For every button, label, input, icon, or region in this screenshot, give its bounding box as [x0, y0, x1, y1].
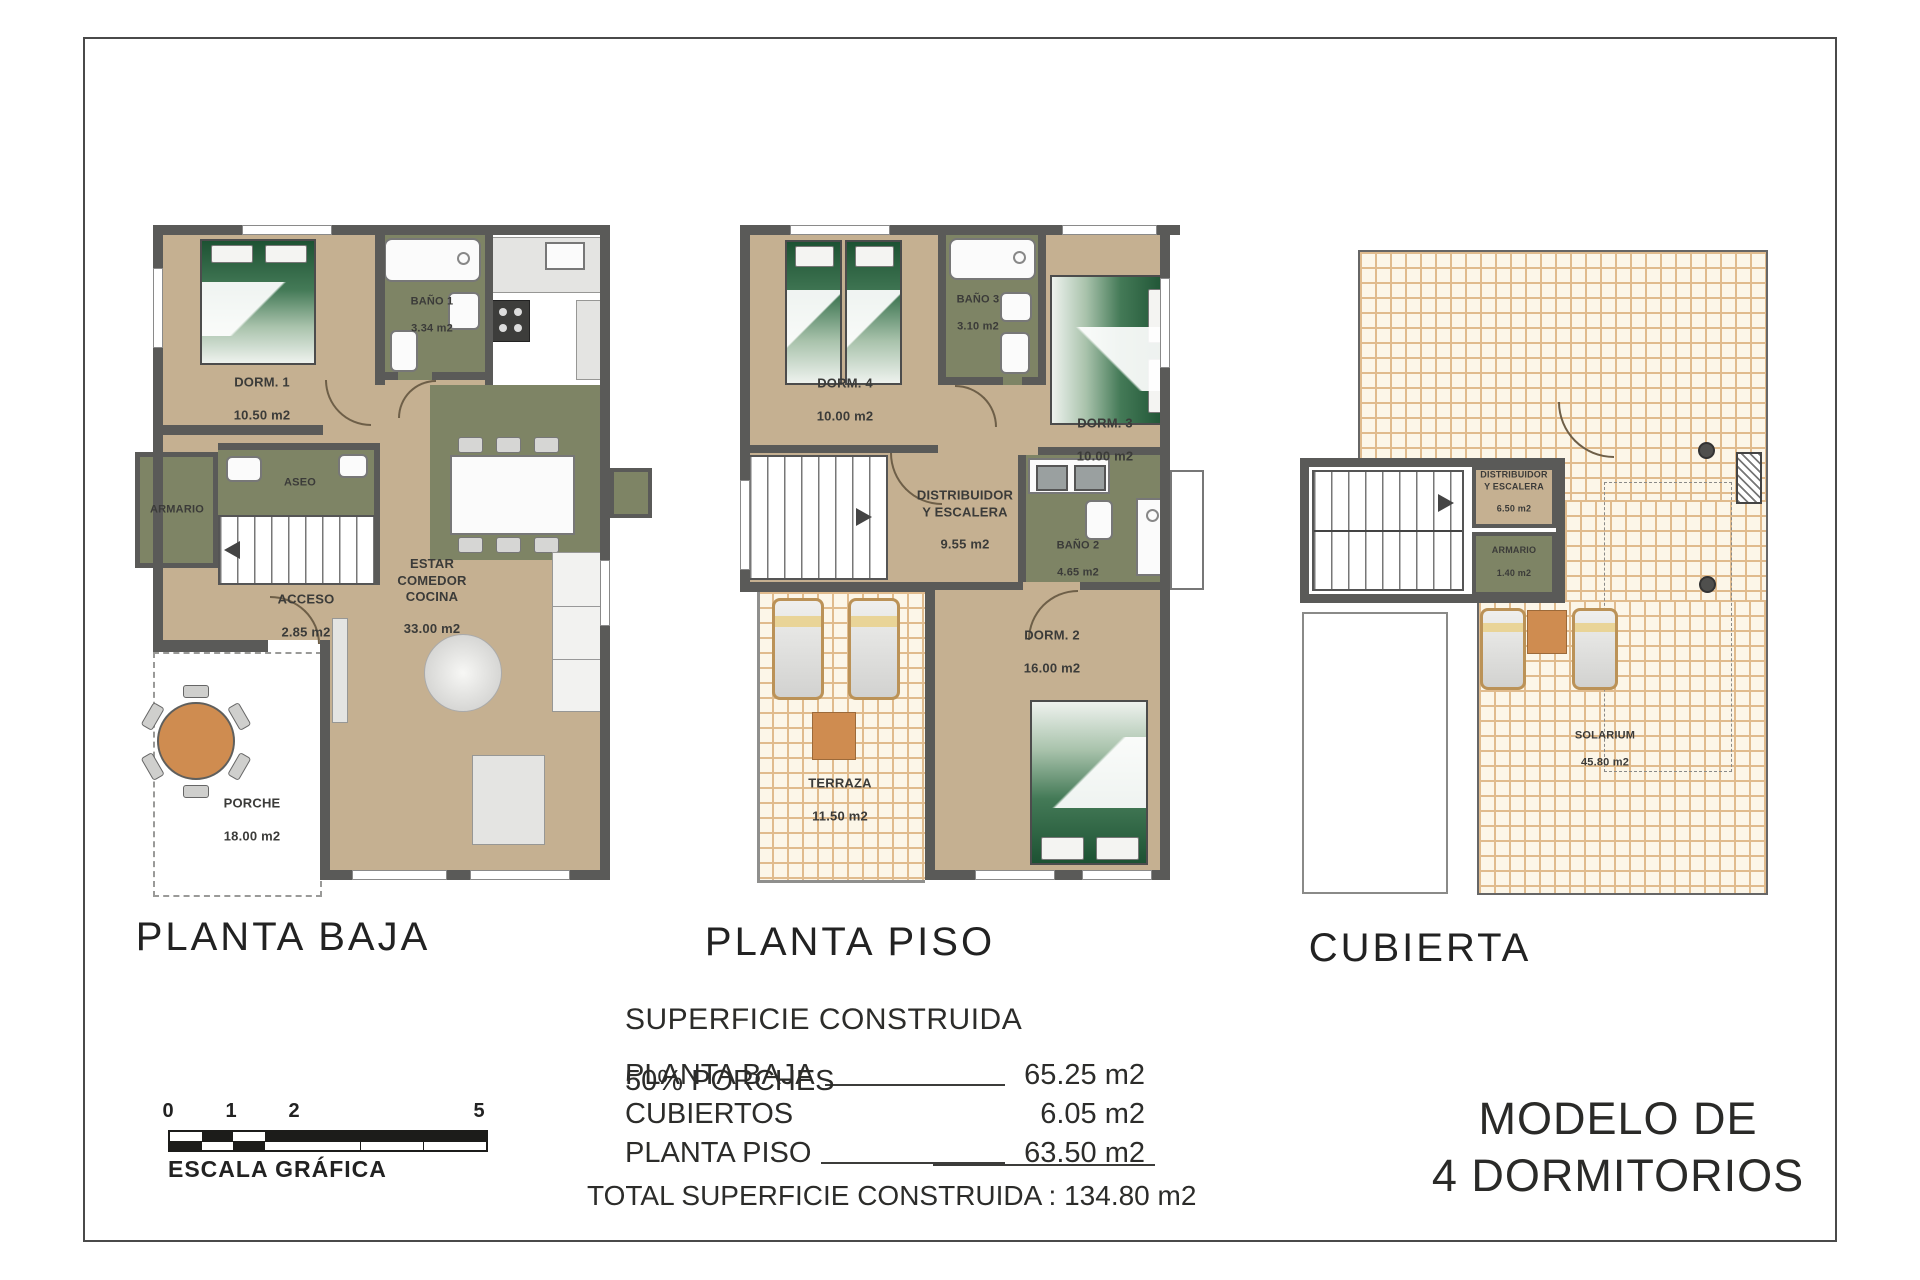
- scale-bar: [168, 1130, 488, 1152]
- graphic-scale: 0 1 2 5 ESCALA GRÁFICA: [0, 0, 1920, 1280]
- scale-tick: 1: [219, 1100, 243, 1123]
- scale-subdivision: [423, 1141, 425, 1150]
- scale-midline: [170, 1141, 486, 1142]
- scale-tick: 5: [467, 1100, 491, 1123]
- scale-subdivision: [360, 1141, 362, 1150]
- model-title-line2: 4 DORMITORIOS: [1418, 1147, 1818, 1204]
- floorplan-sheet: DORM. 1 10.50 m2 BAÑO 1 3.34 m2 ARMARIO …: [0, 0, 1920, 1280]
- scale-segment: [170, 1141, 202, 1150]
- scale-label: ESCALA GRÁFICA: [168, 1156, 387, 1183]
- model-title: MODELO DE 4 DORMITORIOS: [1418, 1090, 1818, 1204]
- model-title-line1: MODELO DE: [1418, 1090, 1818, 1147]
- scale-segment: [233, 1141, 265, 1150]
- scale-tick: 0: [156, 1100, 180, 1123]
- scale-tick: 2: [282, 1100, 306, 1123]
